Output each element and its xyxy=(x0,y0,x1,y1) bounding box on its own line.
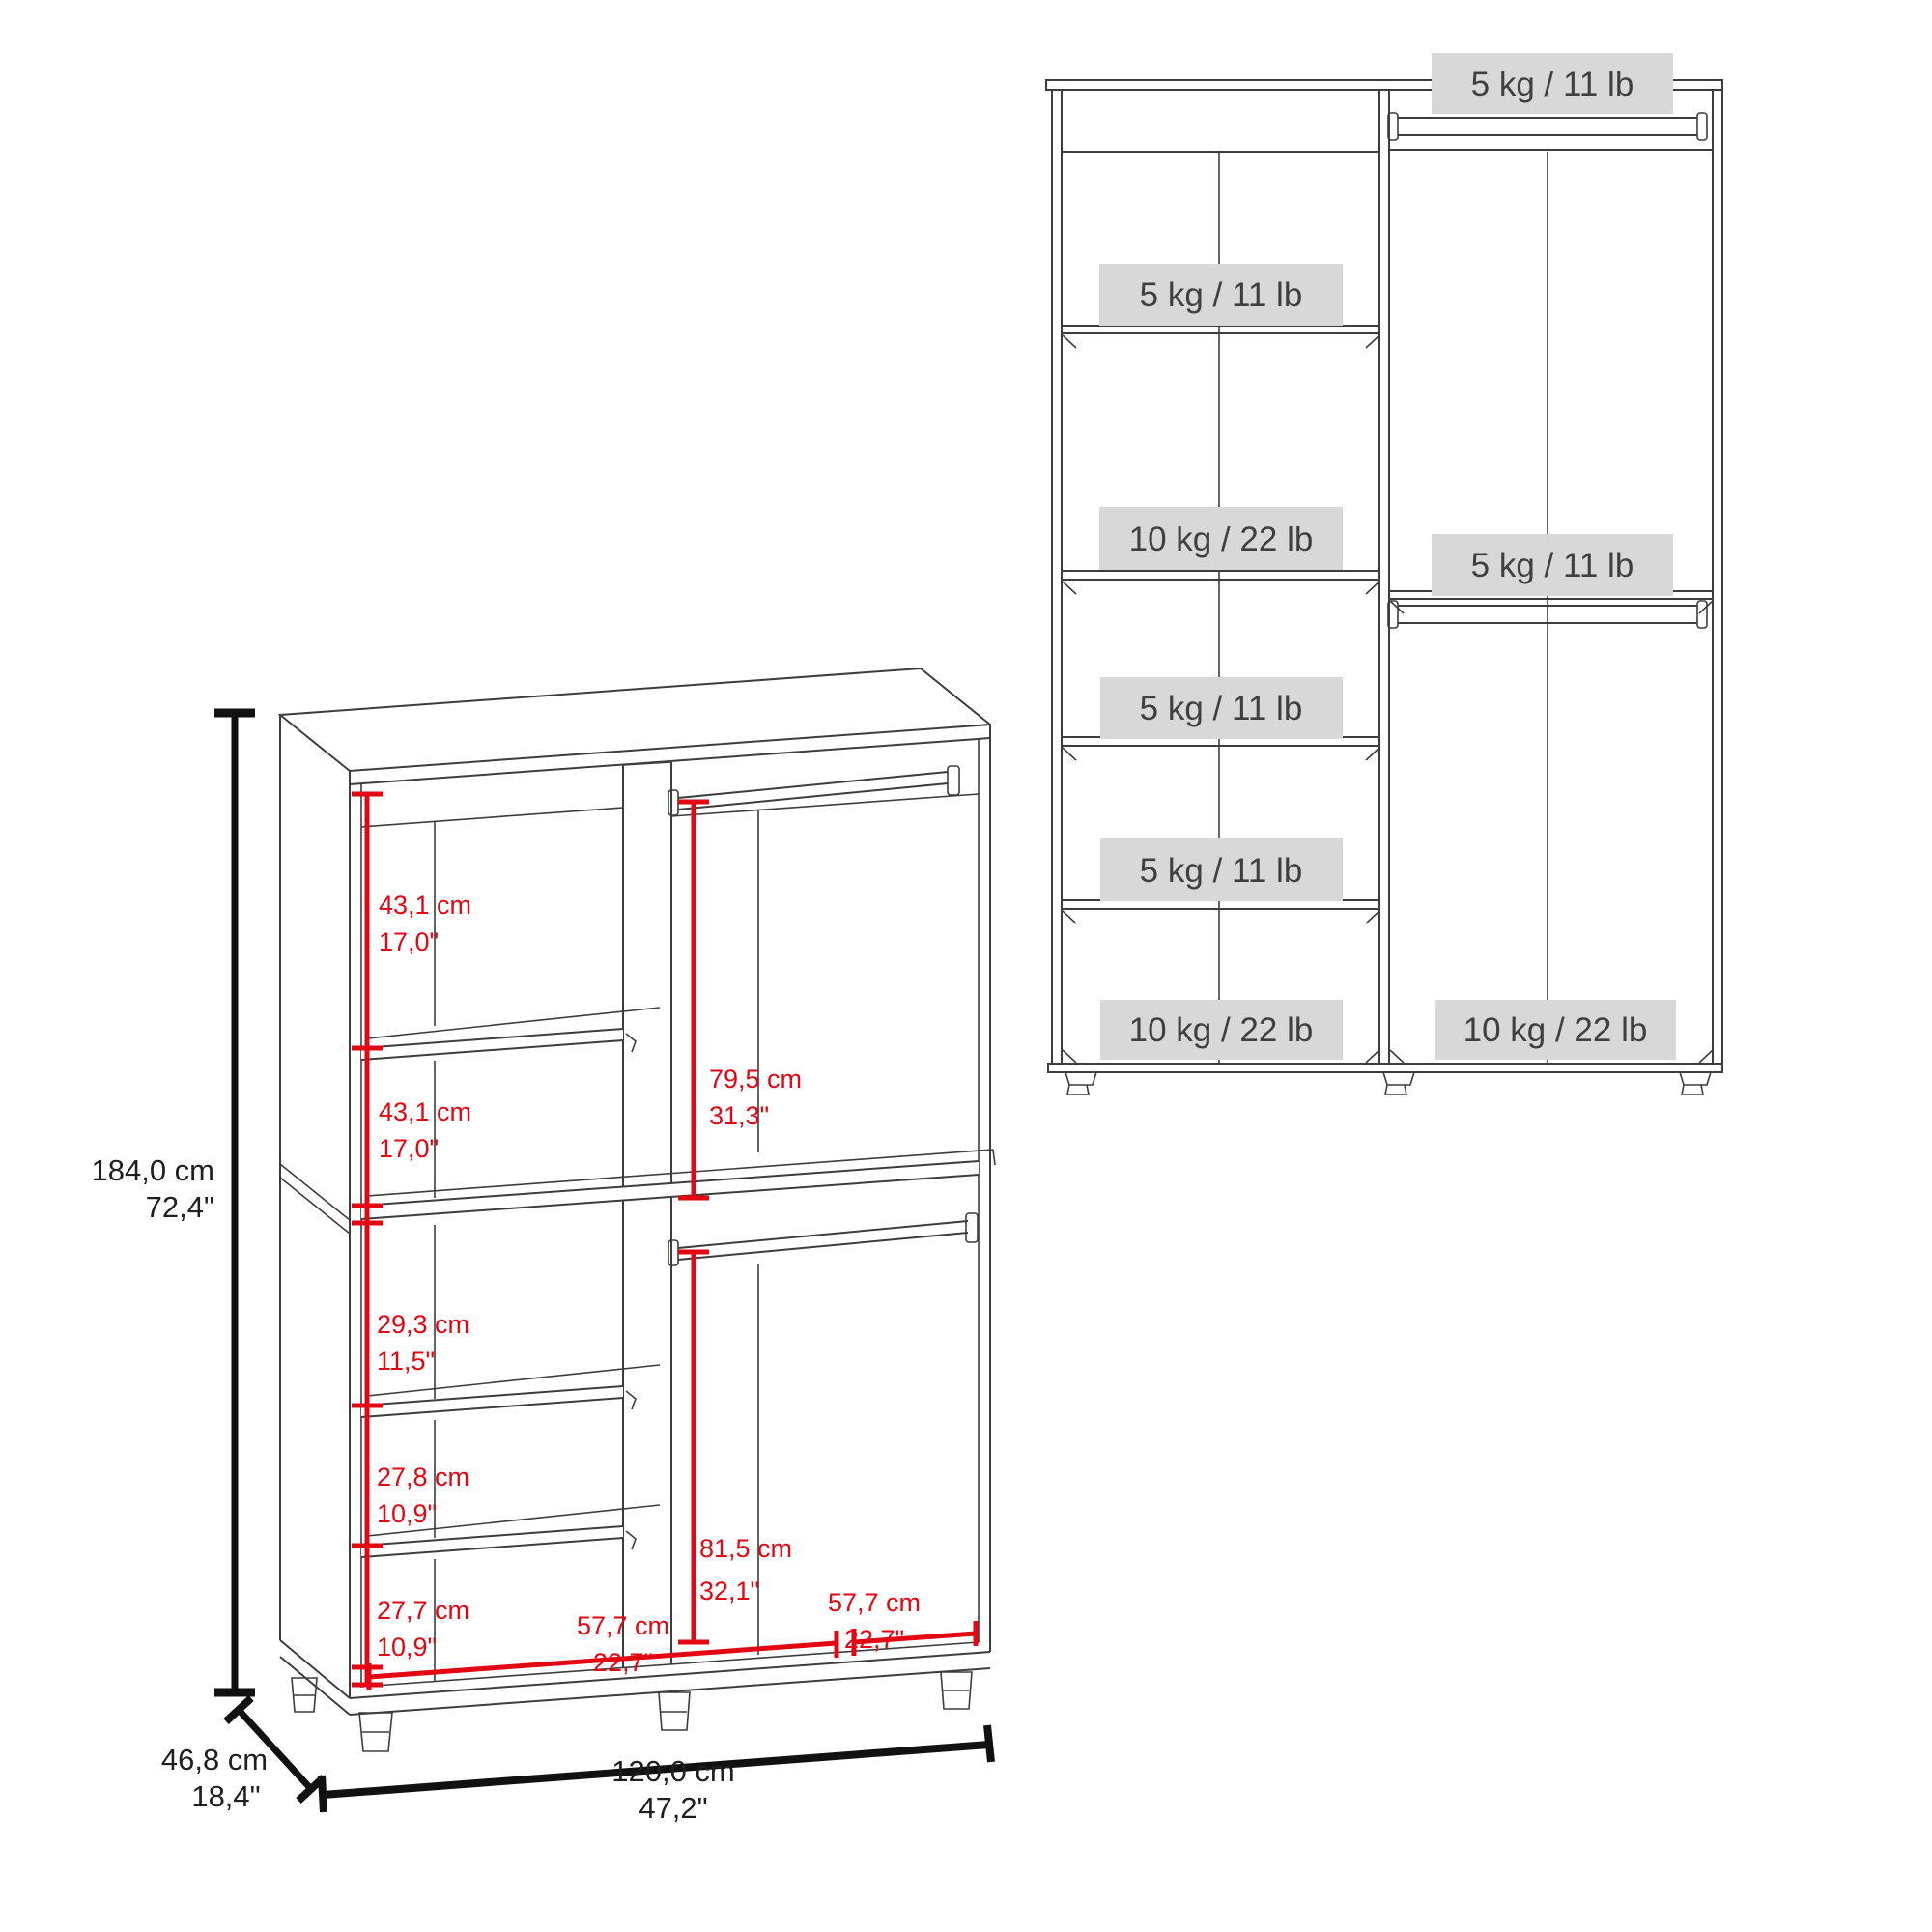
width-dim-inch: 47,2" xyxy=(639,1791,707,1825)
dim-lower-left-3-inch: 10,9" xyxy=(377,1633,437,1662)
dim-lower-right-cm: 81,5 cm xyxy=(699,1534,792,1563)
dim-upper-left-1-cm: 43,1 cm xyxy=(379,891,471,920)
capacity-text-left-shelf-3: 5 kg / 11 lb xyxy=(1140,852,1303,890)
capacity-text-mid-rod: 5 kg / 11 lb xyxy=(1471,547,1634,584)
dim-upper-left-2-cm: 43,1 cm xyxy=(379,1097,471,1126)
dim-lower-left-2-inch: 10,9" xyxy=(377,1499,437,1528)
capacity-label-mid-rod: 5 kg / 11 lb xyxy=(1432,534,1673,596)
dim-lower-right-inch: 32,1" xyxy=(699,1577,759,1605)
cabinet-feet xyxy=(1065,1072,1711,1094)
dim-lower-right-width-inch: 22,7" xyxy=(844,1625,904,1654)
left-perspective-diagram: 43,1 cm 17,0" 43,1 cm 17,0" 79,5 cm 31,3… xyxy=(91,668,995,1825)
dim-lower-left-1-cm: 29,3 cm xyxy=(377,1310,469,1339)
capacity-label-left-shelf-1: 5 kg / 11 lb xyxy=(1099,264,1343,326)
center-partition xyxy=(623,762,671,1667)
top-rails xyxy=(361,794,979,827)
red-dimension-lines xyxy=(352,794,976,1690)
perspective-top-rod xyxy=(668,766,959,815)
furniture-dimension-sheet: 5 kg / 11 lb 5 kg / 11 lb 10 kg / 22 lb … xyxy=(0,0,1932,1932)
right-front-diagram: 5 kg / 11 lb 5 kg / 11 lb 10 kg / 22 lb … xyxy=(1046,53,1722,1094)
capacity-text-top-rod: 5 kg / 11 lb xyxy=(1471,66,1634,103)
capacity-text-right-bottom: 10 kg / 22 lb xyxy=(1463,1011,1648,1049)
dim-lower-right-width-cm: 57,7 cm xyxy=(828,1588,921,1617)
capacity-label-left-shelf-2: 5 kg / 11 lb xyxy=(1100,677,1343,739)
capacity-label-top-rod: 5 kg / 11 lb xyxy=(1432,53,1673,114)
capacity-text-left-bottom: 10 kg / 22 lb xyxy=(1129,1011,1314,1049)
capacity-label-left-divider: 10 kg / 22 lb xyxy=(1099,507,1343,570)
height-dimension-line xyxy=(214,713,255,1694)
shelf-upper xyxy=(361,1008,660,1060)
capacity-text-left-divider: 10 kg / 22 lb xyxy=(1129,521,1314,558)
perspective-mid-rod xyxy=(668,1213,978,1265)
width-dim-cm: 120,0 cm xyxy=(611,1754,735,1788)
top-hanging-rod xyxy=(1388,113,1707,140)
dim-lower-left-width-cm: 57,7 cm xyxy=(577,1611,669,1640)
capacity-label-right-bottom: 10 kg / 22 lb xyxy=(1435,1000,1676,1060)
capacity-label-left-shelf-3: 5 kg / 11 lb xyxy=(1100,838,1343,901)
dimension-drawing: 5 kg / 11 lb 5 kg / 11 lb 10 kg / 22 lb … xyxy=(0,0,1932,1932)
capacity-text-left-shelf-2: 5 kg / 11 lb xyxy=(1140,690,1303,727)
dim-lower-left-2-cm: 27,8 cm xyxy=(377,1463,469,1492)
dim-upper-left-1-inch: 17,0" xyxy=(379,927,439,956)
dim-lower-left-1-inch: 11,5" xyxy=(377,1347,435,1376)
capacity-text-left-shelf-1: 5 kg / 11 lb xyxy=(1140,276,1303,314)
height-dim-inch: 72,4" xyxy=(146,1190,214,1224)
dim-lower-left-width-inch: 22,7" xyxy=(593,1648,653,1677)
depth-dim-inch: 18,4" xyxy=(191,1779,260,1813)
red-right-vertical-upper xyxy=(678,802,709,1198)
dim-upper-left-2-inch: 17,0" xyxy=(379,1134,439,1163)
capacity-label-left-bottom: 10 kg / 22 lb xyxy=(1100,1000,1343,1060)
height-dim-cm: 184,0 cm xyxy=(91,1153,214,1187)
dim-upper-right-inch: 31,3" xyxy=(709,1101,769,1130)
dim-lower-left-3-cm: 27,7 cm xyxy=(377,1596,469,1625)
dim-upper-right-cm: 79,5 cm xyxy=(709,1065,802,1094)
depth-dim-cm: 46,8 cm xyxy=(161,1743,268,1776)
